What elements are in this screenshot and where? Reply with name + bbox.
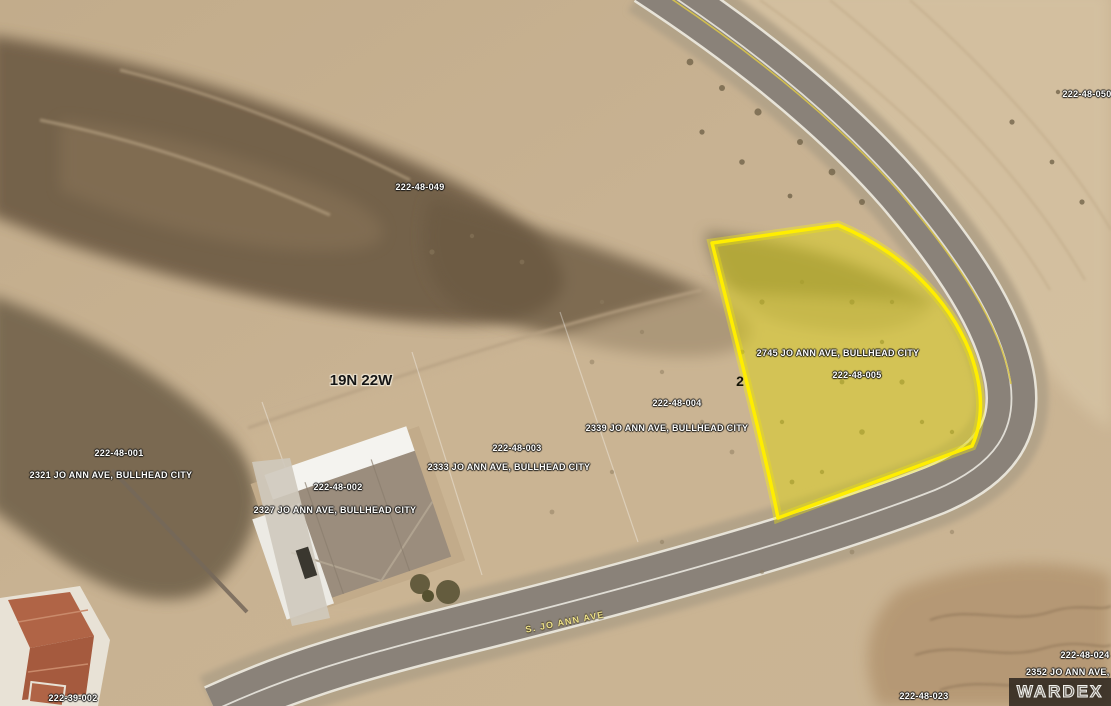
apn-label-highlighted-parcel: 222-48-005 xyxy=(832,370,881,380)
aerial-parcel-map-screenshot: { "map": { "township_label": "19N 22W", … xyxy=(0,0,1111,706)
apn-label-222-48-050: 222-48-050 xyxy=(1062,89,1111,99)
address-label-highlighted-parcel: 2745 JO ANN AVE, BULLHEAD CITY xyxy=(757,348,920,358)
address-label-2339: 2339 JO ANN AVE, BULLHEAD CITY xyxy=(586,423,749,433)
wardex-logo-text: WARDEX xyxy=(1017,682,1104,702)
apn-label-222-48-002: 222-48-002 xyxy=(313,482,362,492)
apn-label-222-48-024: 222-48-024 xyxy=(1060,650,1109,660)
apn-label-222-48-003: 222-48-003 xyxy=(492,443,541,453)
aerial-imagery xyxy=(0,0,1111,706)
lot-number-label: 2 xyxy=(736,373,744,389)
apn-label-222-48-001: 222-48-001 xyxy=(94,448,143,458)
wardex-watermark: WARDEX xyxy=(1009,678,1111,706)
address-label-2333: 2333 JO ANN AVE, BULLHEAD CITY xyxy=(428,462,591,472)
apn-label-222-39-002: 222-39-002 xyxy=(48,693,97,703)
address-label-2352: 2352 JO ANN AVE, BULLH xyxy=(1026,667,1111,677)
address-label-2321: 2321 JO ANN AVE, BULLHEAD CITY xyxy=(30,470,193,480)
apn-label-222-48-023: 222-48-023 xyxy=(899,691,948,701)
aerial-map-canvas[interactable]: 222-48-049 222-48-050 2745 JO ANN AVE, B… xyxy=(0,0,1111,706)
township-range-label: 19N 22W xyxy=(330,372,393,389)
apn-label-222-48-049: 222-48-049 xyxy=(395,182,444,192)
apn-label-222-48-004: 222-48-004 xyxy=(652,398,701,408)
address-label-2327: 2327 JO ANN AVE, BULLHEAD CITY xyxy=(254,505,417,515)
